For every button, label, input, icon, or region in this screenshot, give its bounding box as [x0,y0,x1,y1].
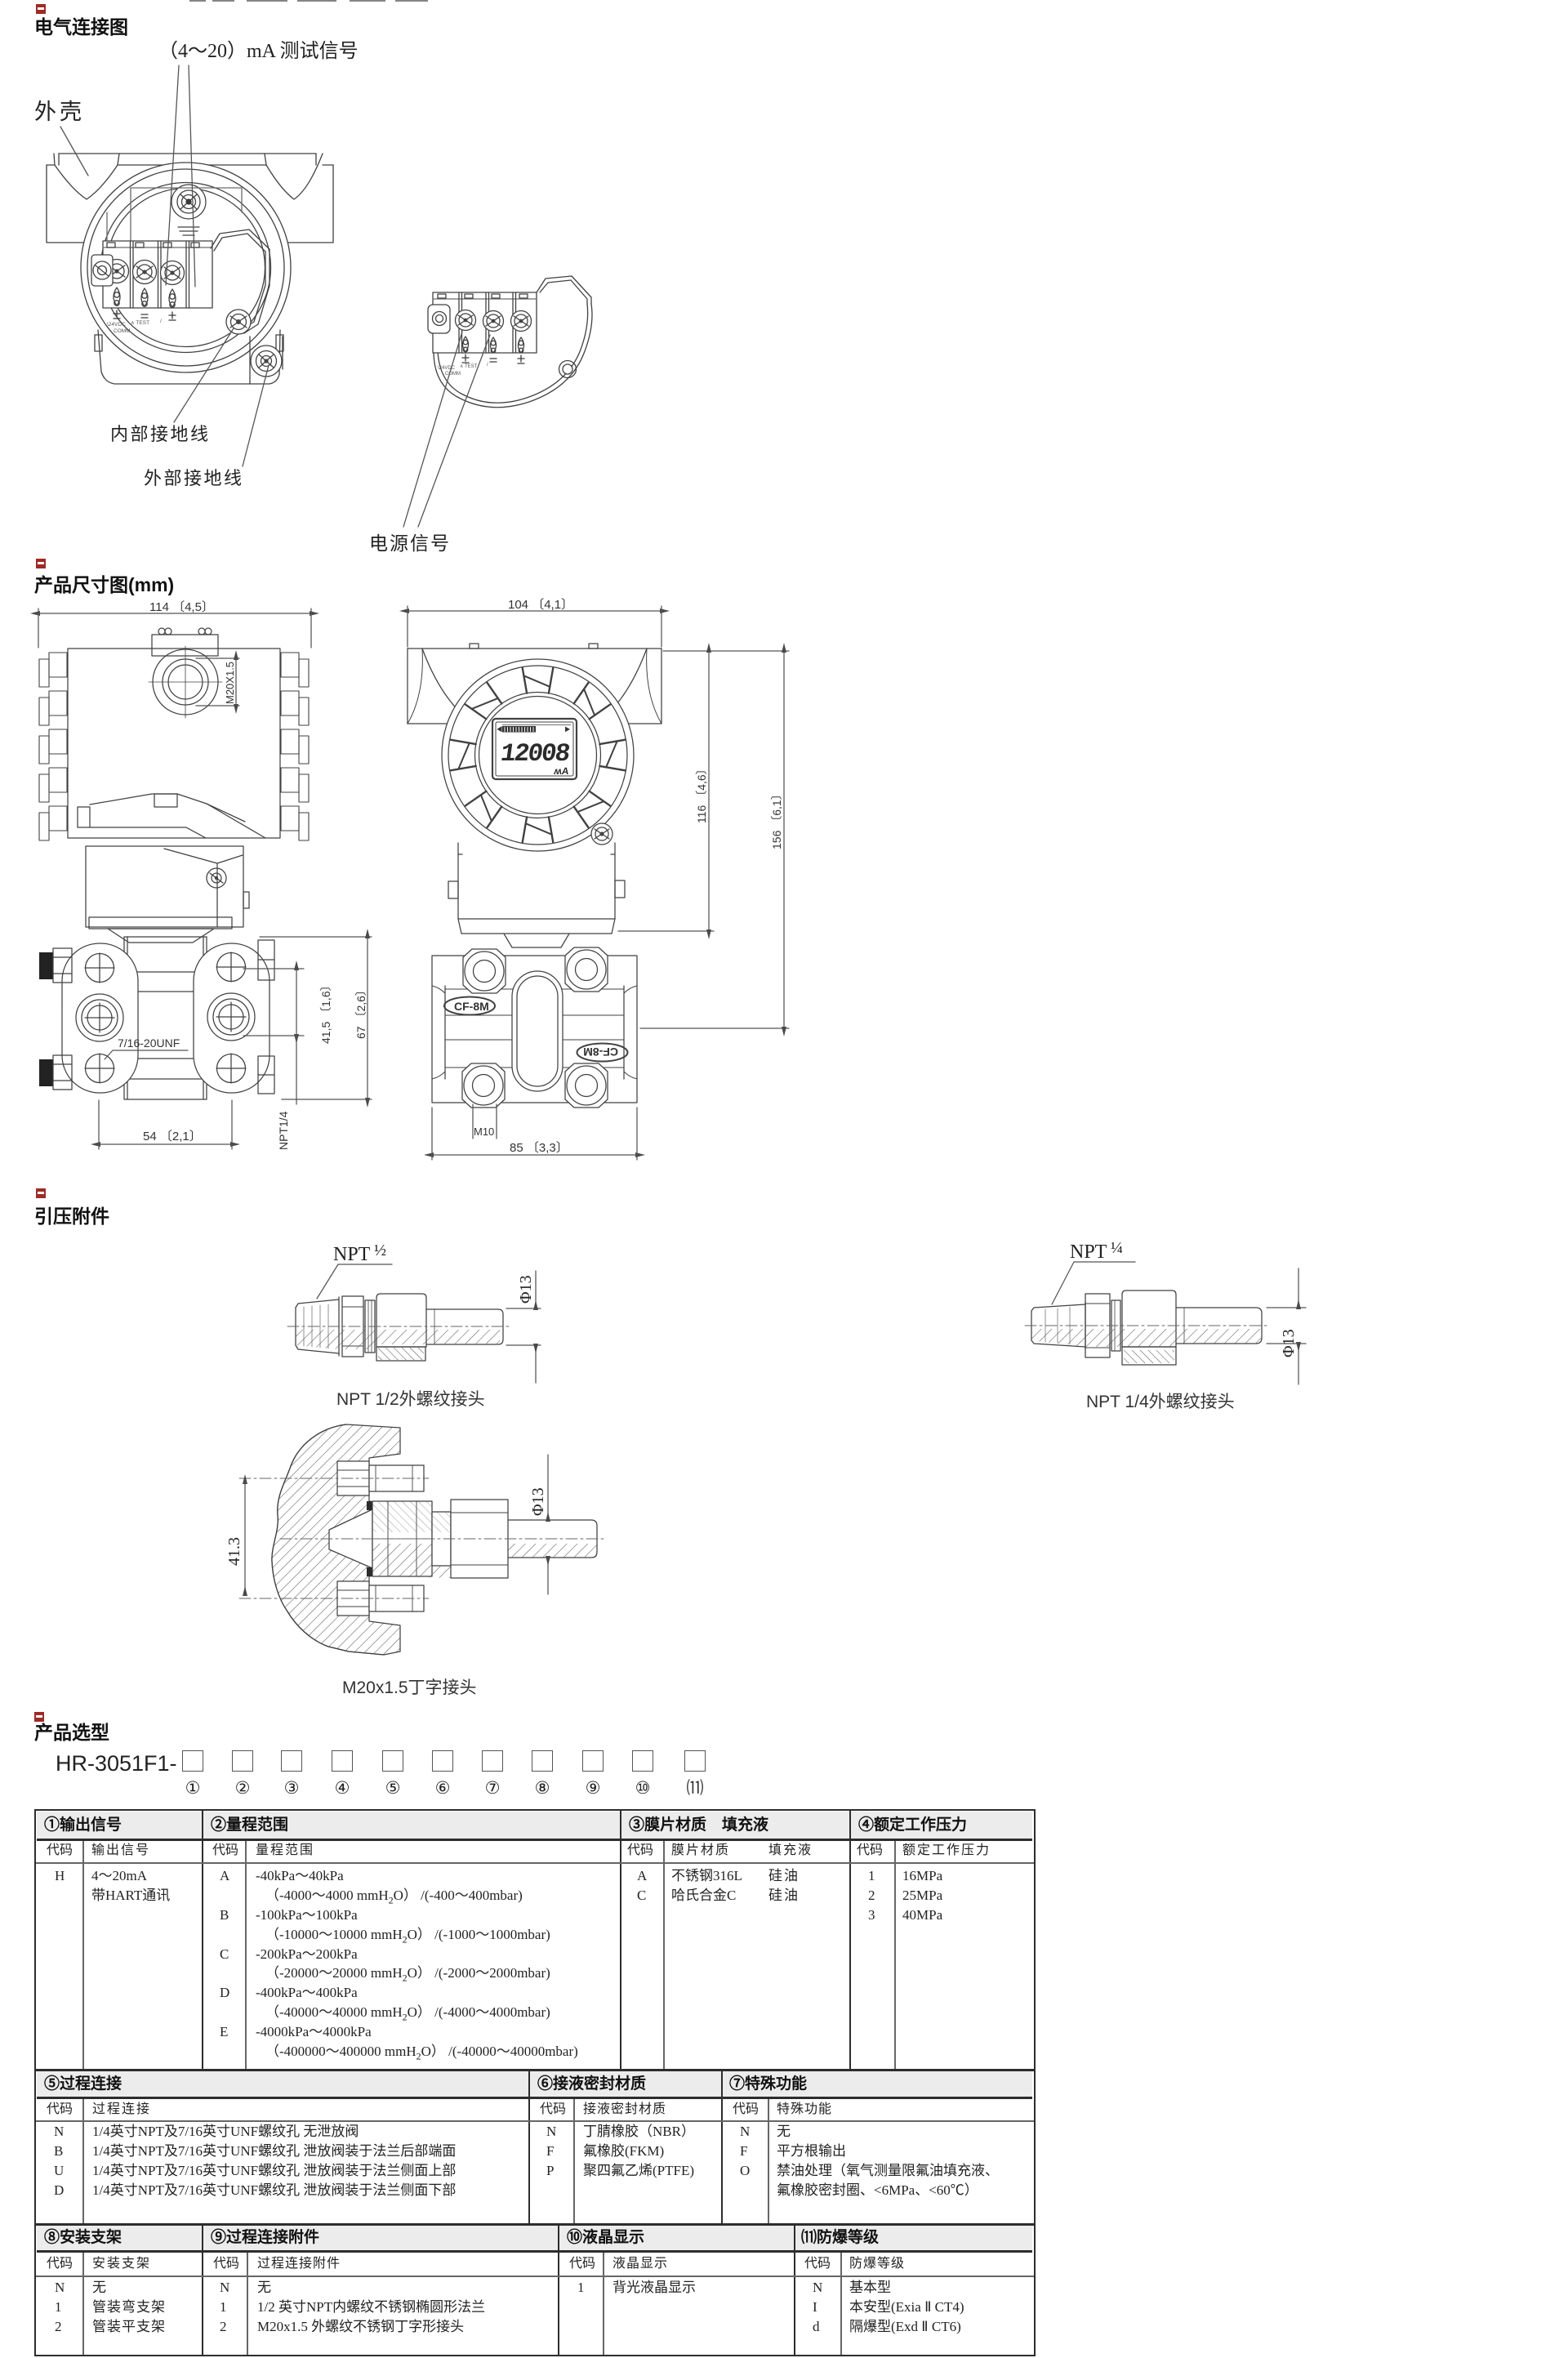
svg-text:Φ13: Φ13 [517,1275,535,1304]
svg-text:41,5 〔1,6〕: 41,5 〔1,6〕 [319,979,332,1044]
svg-text:NPT1/4: NPT1/4 [277,1111,290,1150]
svg-text:CF-8M: CF-8M [583,1045,618,1059]
svg-text:67 〔2,6〕: 67 〔2,6〕 [354,984,367,1039]
svg-text:116 〔4,6〕: 116 〔4,6〕 [695,763,708,823]
svg-text:¼: ¼ [1111,1239,1123,1257]
svg-text:41.3: 41.3 [225,1537,243,1566]
svg-text:12008: 12008 [499,740,572,769]
svg-text:CF-8M: CF-8M [454,1000,489,1013]
svg-text:M10: M10 [474,1126,494,1138]
svg-text:½: ½ [374,1241,386,1259]
svg-text:NPT: NPT [1070,1241,1107,1263]
svg-text:ʍA: ʍA [553,765,570,777]
svg-text:NPT: NPT [333,1244,371,1265]
svg-text:156 〔6,1〕: 156 〔6,1〕 [770,788,783,849]
svg-text:54 〔2,1〕: 54 〔2,1〕 [143,1130,202,1143]
svg-text:Φ13: Φ13 [1280,1329,1298,1357]
svg-text:7/16-20UNF: 7/16-20UNF [118,1036,180,1050]
svg-text:Φ13: Φ13 [529,1487,547,1516]
svg-text:85 〔3,3〕: 85 〔3,3〕 [510,1141,568,1155]
svg-text:104 〔4,1〕: 104 〔4,1〕 [508,598,573,612]
svg-text:114 〔4,5〕: 114 〔4,5〕 [149,600,214,614]
svg-text:M20X1.5: M20X1.5 [224,662,236,704]
